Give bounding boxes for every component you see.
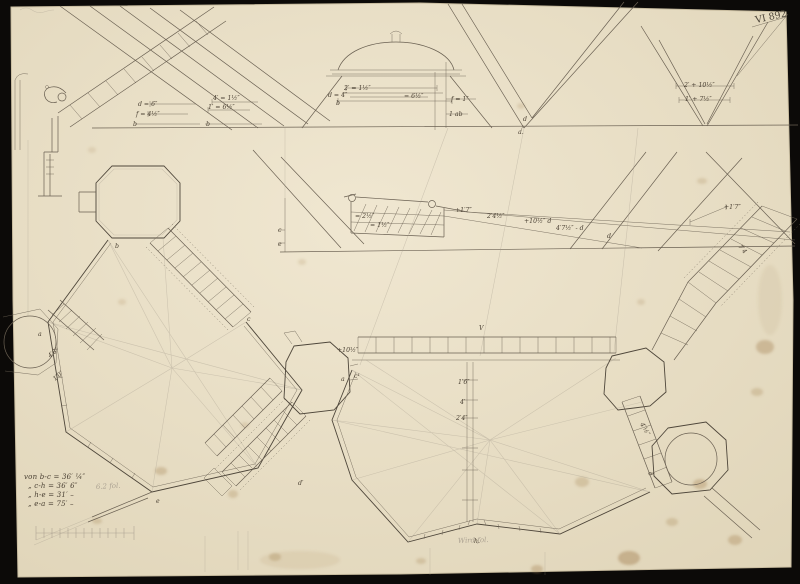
dimension-label: a xyxy=(38,331,42,338)
dimension-label: +1′7″ xyxy=(455,207,472,214)
dimension-label: 4′7½″ - d xyxy=(555,225,584,232)
dimension-label: 2′ + 10½″ xyxy=(683,82,715,89)
dimension-label: V xyxy=(479,325,484,332)
dimension-label: 2′4″ xyxy=(455,415,468,422)
measure-note-line: „ c-h = 36′ 6″ xyxy=(28,482,78,490)
dimension-label: +10½″ d xyxy=(524,218,551,225)
dimension-label: = 2½″ xyxy=(355,213,375,220)
dimension-label: d xyxy=(607,233,611,240)
dimension-label: 4′ xyxy=(459,399,466,406)
dimension-label: f = 4½″ xyxy=(135,111,160,118)
dimension-label: f = 1″ xyxy=(450,96,469,103)
dimension-label: h. xyxy=(474,538,480,545)
dimension-label: +10½″ xyxy=(337,347,359,354)
drawing-canvas: von b-c = 36′ ¼″ „ c-h = 36′ 6″ „ h-e = … xyxy=(0,0,800,584)
dimension-label: b xyxy=(133,121,137,128)
dimension-label: c xyxy=(278,227,282,234)
dimension-label: d xyxy=(523,116,527,123)
scanned-drawing-page: von b-c = 36′ ¼″ „ c-h = 36′ 6″ „ h-e = … xyxy=(0,0,800,584)
dimension-label: 2′4½″ xyxy=(486,213,505,220)
dimension-label: 2′ = 1½″ xyxy=(343,85,371,92)
dimension-label: 1′ + 7½″ xyxy=(685,96,712,103)
dimension-label: b xyxy=(115,243,119,250)
paper-sheet xyxy=(11,3,793,577)
dimension-label: 1 ab xyxy=(449,111,463,118)
dimension-label: +1′7″ xyxy=(724,204,741,211)
dimension-label: e xyxy=(278,241,282,248)
dimension-label: c¹ xyxy=(354,373,360,380)
dimension-label: 1′ = 6½″ xyxy=(208,104,235,111)
pencil-note-left: 6.2 fol. xyxy=(96,482,121,491)
dimension-label: = 1½″ xyxy=(370,222,390,229)
measure-note-line: „ h-e = 31′ – xyxy=(28,491,74,499)
dimension-label: c xyxy=(247,316,251,323)
dimension-label: 4′ = 1½″ xyxy=(212,95,240,102)
dimension-label: d = 4″ xyxy=(328,92,348,99)
dimension-label: e xyxy=(156,498,160,505)
measure-note-line: „ e-a = 75′ – xyxy=(28,500,74,508)
dimension-label: = 6½″ xyxy=(404,93,424,100)
dimension-label: a. xyxy=(518,129,524,136)
dimension-label: a xyxy=(341,376,345,383)
dimension-label: b xyxy=(206,121,210,128)
dimension-label: d = 6″ xyxy=(138,101,158,108)
dimension-label: 1′6″ xyxy=(458,379,470,386)
dimension-label: b xyxy=(336,100,340,107)
measure-note-line: von b-c = 36′ ¼″ xyxy=(24,473,85,481)
dimension-label: d′ xyxy=(298,480,304,487)
